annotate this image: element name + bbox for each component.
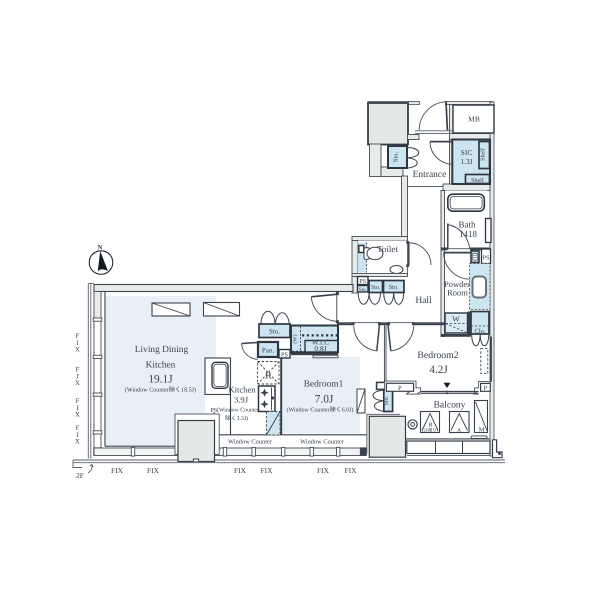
svg-text:Bedroom1: Bedroom1 <box>304 379 344 389</box>
svg-text:Window Counter: Window Counter <box>300 439 345 446</box>
svg-text:(Window Counter除く18.5J): (Window Counter除く18.5J) <box>125 385 196 393</box>
svg-text:PS: PS <box>359 278 366 285</box>
svg-text:FIX: FIX <box>260 466 273 475</box>
svg-text:FIX: FIX <box>111 466 124 475</box>
svg-text:FIX: FIX <box>234 466 247 475</box>
svg-text:1418: 1418 <box>459 229 478 239</box>
svg-text:W: W <box>452 315 460 324</box>
svg-text:Kitchen: Kitchen <box>146 361 176 371</box>
svg-text:Sto.: Sto. <box>388 284 399 291</box>
svg-text:(Window Counter除く6.0J): (Window Counter除く6.0J) <box>286 405 353 413</box>
svg-text:(W): (W) <box>293 334 299 343</box>
svg-text:Living Dining: Living Dining <box>135 345 189 355</box>
svg-text:MB: MB <box>468 115 480 124</box>
svg-text:P: P <box>483 385 487 392</box>
svg-text:FIX: FIX <box>344 466 357 475</box>
svg-text:19.1J: 19.1J <box>148 373 173 385</box>
svg-text:FIX: FIX <box>317 466 330 475</box>
svg-text:除く3.3J): 除く3.3J) <box>225 415 248 422</box>
svg-text:Sto.: Sto. <box>269 327 280 335</box>
svg-text:X: X <box>75 439 80 446</box>
svg-text:N: N <box>98 244 103 251</box>
svg-text:R: R <box>265 371 272 382</box>
svg-text:0.8J: 0.8J <box>314 344 326 353</box>
svg-text:Balcony: Balcony <box>434 399 466 410</box>
svg-text:Sto.: Sto. <box>371 285 381 291</box>
svg-text:Sto.: Sto. <box>393 151 400 162</box>
svg-text:P: P <box>398 385 402 392</box>
svg-text:A: A <box>457 427 462 434</box>
svg-text:Kitchen: Kitchen <box>228 385 256 395</box>
svg-text:X: X <box>75 412 80 419</box>
svg-text:Room: Room <box>447 288 468 298</box>
svg-text:Bath: Bath <box>459 220 476 230</box>
svg-text:Hall: Hall <box>415 296 432 306</box>
svg-text:4.2J: 4.2J <box>429 364 448 376</box>
svg-text:PS: PS <box>210 407 217 414</box>
svg-text:Shelf: Shelf <box>479 148 486 161</box>
svg-text:Sto.: Sto. <box>359 287 367 293</box>
svg-text:Shelf: Shelf <box>471 177 484 184</box>
svg-text:Clo.: Clo. <box>474 328 485 335</box>
svg-text:1.3J: 1.3J <box>460 157 472 166</box>
svg-text:Toilet: Toilet <box>377 244 398 254</box>
svg-text:PS: PS <box>483 254 490 261</box>
svg-text:X: X <box>75 347 80 354</box>
svg-text:Pan.: Pan. <box>262 346 275 354</box>
svg-text:3.9J: 3.9J <box>234 395 249 405</box>
svg-text:Entrance: Entrance <box>413 170 447 180</box>
svg-text:2F: 2F <box>76 471 84 480</box>
svg-text:X: X <box>75 380 80 387</box>
svg-text:7.0J: 7.0J <box>315 394 334 406</box>
svg-text:Sto.: Sto. <box>384 395 390 405</box>
svg-text:PS: PS <box>281 351 288 358</box>
svg-text:Bedroom2: Bedroom2 <box>417 350 458 361</box>
svg-text:FIX: FIX <box>147 466 160 475</box>
svg-text:SIC: SIC <box>461 148 473 157</box>
svg-text:(Window Counter: (Window Counter <box>217 406 259 413</box>
svg-text:M: M <box>479 426 485 433</box>
svg-text:(2F限り): (2F限り) <box>422 428 439 433</box>
svg-text:Window Counter: Window Counter <box>228 439 273 446</box>
